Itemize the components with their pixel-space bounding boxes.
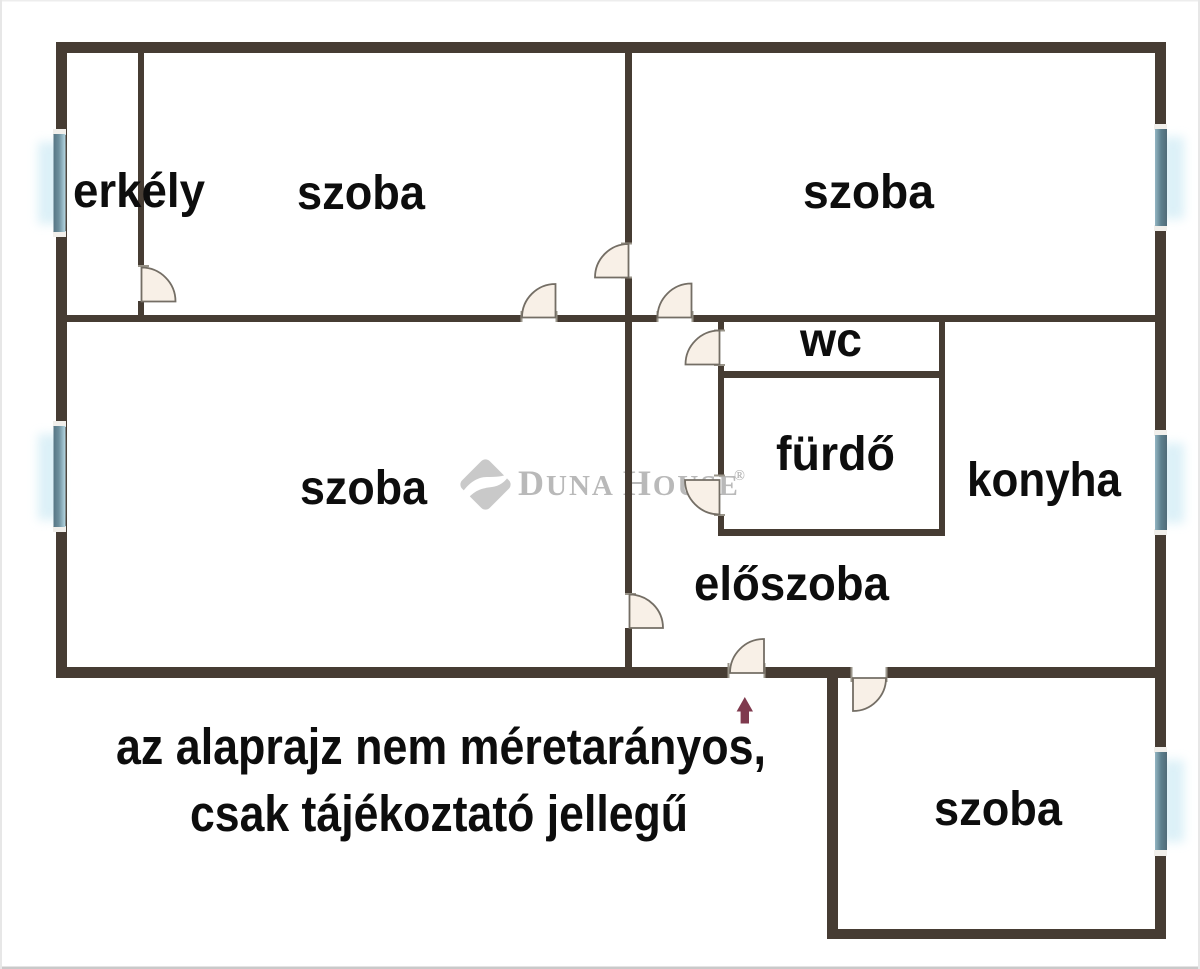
svg-text:wc: wc bbox=[799, 314, 862, 367]
svg-text:konyha: konyha bbox=[967, 454, 1121, 507]
svg-text:szoba: szoba bbox=[934, 783, 1062, 836]
svg-text:szoba: szoba bbox=[803, 166, 934, 219]
svg-text:®: ® bbox=[734, 468, 745, 484]
svg-text:erkély: erkély bbox=[73, 165, 205, 218]
svg-text:szoba: szoba bbox=[297, 167, 425, 220]
svg-text:előszoba: előszoba bbox=[694, 558, 889, 611]
svg-text:szoba: szoba bbox=[300, 462, 427, 515]
svg-text:csak tájékoztató jellegű: csak tájékoztató jellegű bbox=[190, 786, 688, 843]
svg-text:az alaprajz nem méretarányos,: az alaprajz nem méretarányos, bbox=[116, 719, 766, 776]
svg-text:fürdő: fürdő bbox=[776, 428, 895, 481]
